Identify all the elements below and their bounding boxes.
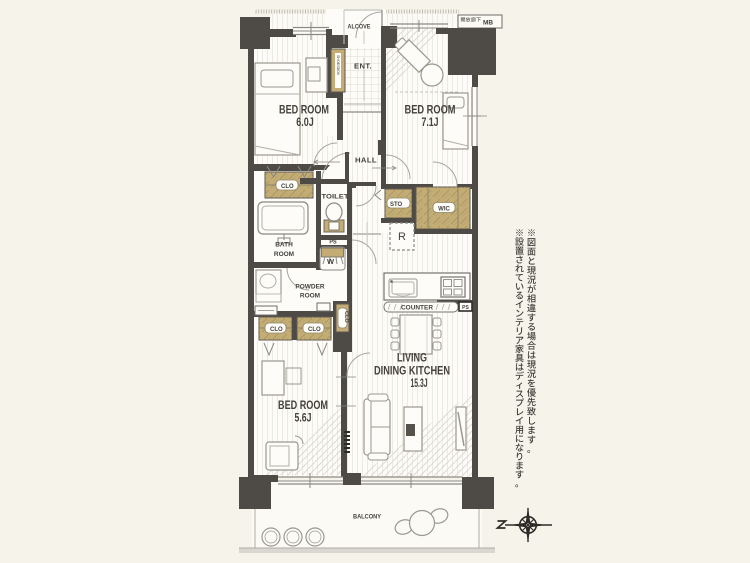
svg-text:BED ROOM: BED ROOM — [405, 105, 456, 117]
svg-text:ENT.: ENT. — [354, 64, 372, 71]
svg-text:W: W — [327, 257, 335, 266]
svg-text:BED ROOM: BED ROOM — [279, 105, 329, 117]
svg-text:R: R — [398, 231, 406, 243]
svg-text:BED ROOM: BED ROOM — [278, 400, 328, 412]
svg-text:CLO: CLO — [281, 184, 294, 190]
svg-text:CLO: CLO — [270, 327, 283, 333]
svg-text:POWDER: POWDER — [295, 284, 325, 291]
svg-text:DINING KITCHEN: DINING KITCHEN — [374, 366, 450, 378]
svg-text:COUNTER: COUNTER — [401, 305, 433, 312]
svg-text:SHOESBOX: SHOESBOX — [336, 55, 340, 76]
svg-text:15.3J: 15.3J — [411, 378, 428, 390]
svg-text:STO: STO — [390, 202, 403, 208]
svg-text:BATH: BATH — [275, 242, 293, 249]
svg-text:PS: PS — [462, 305, 469, 311]
svg-text:LIVING: LIVING — [397, 353, 427, 365]
svg-text:7.1J: 7.1J — [422, 117, 439, 129]
svg-text:5.6J: 5.6J — [295, 413, 312, 425]
svg-text:ROOM: ROOM — [274, 251, 294, 258]
svg-text:6.0J: 6.0J — [296, 117, 314, 129]
svg-text:CLO: CLO — [308, 327, 321, 333]
svg-text:ROOM: ROOM — [300, 293, 320, 300]
svg-text:TOILET: TOILET — [322, 195, 349, 201]
svg-text:WIC: WIC — [438, 207, 450, 213]
svg-text:ALCOVE: ALCOVE — [348, 25, 371, 31]
svg-text:CLO: CLO — [343, 311, 349, 323]
svg-text:PS: PS — [329, 240, 337, 246]
svg-text:HALL: HALL — [355, 158, 377, 165]
svg-text:MB: MB — [483, 20, 493, 27]
svg-text:BALCONY: BALCONY — [353, 514, 382, 521]
